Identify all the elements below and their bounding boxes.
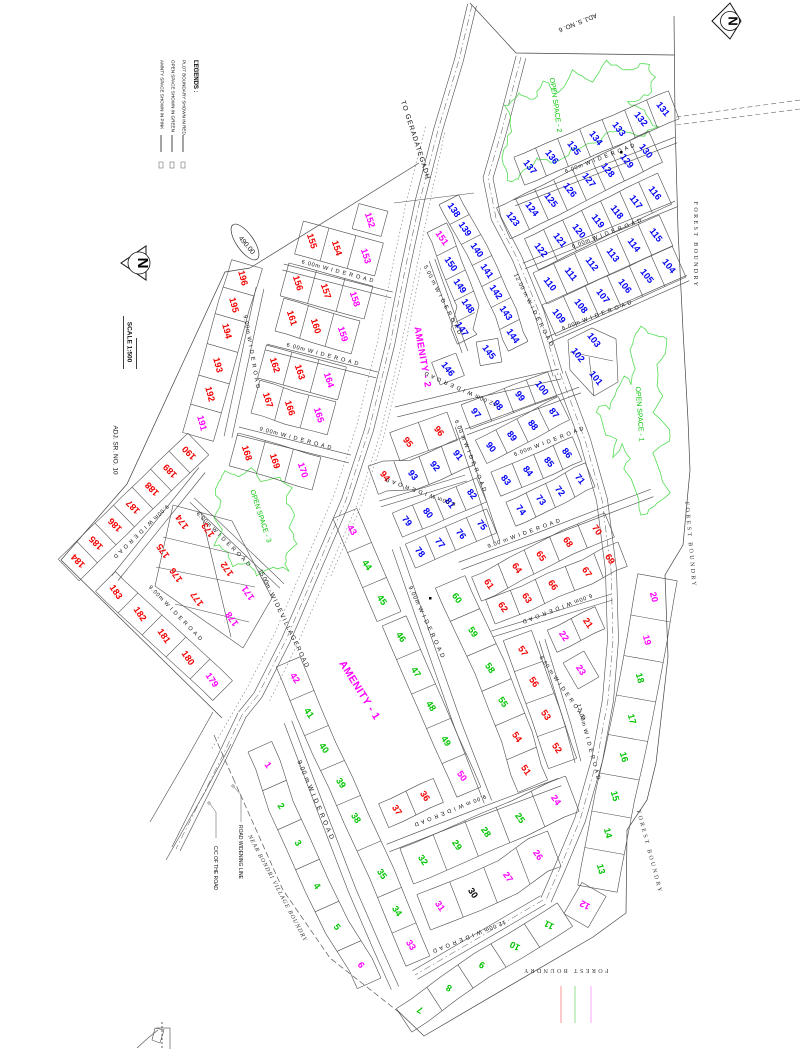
svg-text:LEGENDS :: LEGENDS : [192,60,198,93]
svg-text:FOREST BOUNDRY: FOREST BOUNDRY [522,967,609,973]
svg-text:AMNTY SPACE SHOWN IN PINK: AMNTY SPACE SHOWN IN PINK [159,60,164,130]
svg-text:FOREST BOUNDRY: FOREST BOUNDRY [692,202,698,289]
svg-text:OPEN SPACE SHOWN IN GREEN: OPEN SPACE SHOWN IN GREEN [170,60,175,132]
svg-text:ADJ. SR. NO. 10: ADJ. SR. NO. 10 [112,425,119,475]
svg-text:C/C OF THE ROAD: C/C OF THE ROAD [212,846,218,890]
svg-text:ROAD WIDENING LINE: ROAD WIDENING LINE [237,825,243,880]
svg-text:N: N [134,258,151,269]
svg-text:PLOT BOUNDARY SHOWN IN RED: PLOT BOUNDARY SHOWN IN RED [181,60,186,135]
svg-text:N: N [726,16,741,25]
svg-text:SCALE 1:500: SCALE 1:500 [126,322,133,363]
